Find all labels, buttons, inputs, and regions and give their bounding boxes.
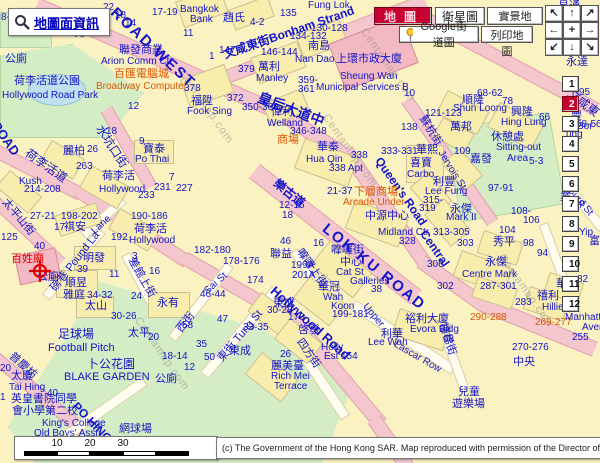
map-label: 38 <box>371 285 382 295</box>
map-label: 祺安 <box>64 222 86 233</box>
map-label: 106 <box>523 216 540 226</box>
map-label: 174 <box>247 276 264 286</box>
map-label: 喜寶 <box>410 158 432 169</box>
map-label: 18 <box>282 211 293 221</box>
map-label: 嚤囉街 <box>331 245 364 256</box>
map-label: 公廁 <box>5 54 27 65</box>
map-label: 98 <box>523 239 534 249</box>
map-label: 35 <box>196 340 207 350</box>
map-label: 319 <box>419 204 436 214</box>
map-label: Arcade Under <box>343 198 405 208</box>
map-label: 135 <box>280 9 297 19</box>
pan-west[interactable]: ← <box>545 22 563 39</box>
map-label: Mark II <box>446 213 477 223</box>
map-label: 190-186 <box>131 212 168 222</box>
map-label: 明發 <box>83 253 105 264</box>
map-label: Football Pitch <box>48 343 115 354</box>
map-label: 富 <box>589 236 600 247</box>
pan-east[interactable]: → <box>581 22 599 39</box>
map-label: 287-301 <box>480 282 517 292</box>
map-label: 21-37 <box>327 187 353 197</box>
zoom-level-6[interactable]: 6 <box>562 176 579 192</box>
map-label: 333-331 <box>381 147 418 157</box>
map-label: 中源中心 <box>365 211 409 222</box>
map-label: 17-19 <box>152 8 178 18</box>
zoom-level-7[interactable]: 7 <box>562 196 579 212</box>
scale-bar: 102030 <box>14 436 218 460</box>
map-label: 聯益 <box>270 249 292 260</box>
map-label: 26 <box>87 145 98 155</box>
map-label: 27-21 <box>30 212 56 222</box>
map-label: 47 <box>217 315 228 325</box>
map-label: Carbo <box>407 170 434 180</box>
map-label: 雅庭 <box>63 290 85 301</box>
pan-southwest[interactable]: ↙ <box>545 39 563 56</box>
map-label: 東成 <box>229 346 251 357</box>
map-label: 302 <box>437 282 454 292</box>
map-label: 263 <box>76 162 93 172</box>
map-label: 40 <box>47 389 58 399</box>
zoom-level-3[interactable]: 3 <box>562 116 579 132</box>
map-label: 嘉發 <box>470 154 492 165</box>
map-label: 192 <box>111 233 128 243</box>
map-label: 1 <box>209 52 215 62</box>
map-label: 荷李活道公園 <box>14 76 80 87</box>
map-label: 147 <box>219 46 236 56</box>
map-label: 卜公花園 <box>87 358 135 370</box>
map-label: 94 <box>537 249 548 259</box>
zoom-level-5[interactable]: 5 <box>562 156 579 172</box>
map-label: 39 <box>77 265 88 275</box>
map-label: 303 <box>457 239 474 249</box>
map-info-button[interactable]: 地圖面資訊 <box>8 8 110 36</box>
map-label: Lee Wah <box>368 338 408 348</box>
map-label: 趙氏 <box>223 13 245 24</box>
map-label: Sitting-out <box>496 143 541 153</box>
map-label: 秀平 <box>493 237 515 248</box>
map-label: Hollywood Road Park <box>2 91 98 101</box>
map-canvas[interactable]: Centamap.comCentamap.comCentamap.comCent… <box>0 0 600 463</box>
map-label: Arion Comm Ctr <box>101 57 173 67</box>
map-label: Nan Dao <box>295 55 334 65</box>
map-label: 214-208 <box>24 185 61 195</box>
scale-segment <box>90 451 123 456</box>
map-label: 12 <box>128 102 139 112</box>
map-label: 網球場 <box>119 424 152 435</box>
map-label: 荷李活 <box>134 224 167 235</box>
map-label: Sheung Wan <box>340 72 397 82</box>
map-label: 338 Apt <box>329 164 363 174</box>
pan-center[interactable]: + <box>563 22 581 39</box>
map-label: Terrace <box>274 382 307 392</box>
map-label: 46 <box>280 237 291 247</box>
map-label: Hollywood <box>129 236 175 246</box>
map-label: Bank <box>190 15 213 25</box>
map-label: Tai Hing <box>9 383 45 393</box>
scale-tick: 10 <box>49 438 65 449</box>
pan-control: ↖↑↗←+→↙↓↘ <box>545 5 599 56</box>
map-label: 26 <box>280 350 291 360</box>
map-label: Municipal Services B <box>316 83 409 93</box>
map-info-button-label: 地圖面資訊 <box>34 13 99 32</box>
map-label: 永有 <box>157 298 179 309</box>
location-marker-icon <box>29 260 51 282</box>
map-label: 16 <box>149 267 160 277</box>
map-label: 5-3 <box>529 157 543 167</box>
map-label: 18-14 <box>162 352 188 362</box>
scale-segment <box>57 451 90 456</box>
map-label: 11 <box>183 29 193 39</box>
map-label: 16 <box>313 239 324 249</box>
map-label: 233 <box>138 191 155 201</box>
map-label: 中央 <box>513 357 535 368</box>
map-label: 313-305 <box>433 228 470 238</box>
zoom-level-10[interactable]: 10 <box>562 256 579 272</box>
map-label: 11 <box>109 270 119 280</box>
scale-segment <box>24 451 57 456</box>
map-label: 20 <box>148 333 159 343</box>
map-label: 255 <box>572 333 589 343</box>
map-label: 兒童 <box>458 387 480 398</box>
scale-tick: 20 <box>82 438 98 449</box>
map-label: 百匯電腦城 <box>114 69 169 80</box>
map-label: Centre Mark <box>462 270 517 280</box>
map-label: 聯發商業 <box>119 45 163 56</box>
map-label: 104 <box>499 226 516 236</box>
map-label: 97-91 <box>488 184 514 194</box>
zoom-level-2[interactable]: 2 <box>562 96 579 112</box>
map-label: 231 <box>154 183 171 193</box>
zoom-level-control: 123456789101112 <box>562 74 580 314</box>
map-label: 萬邦 <box>450 122 472 133</box>
map-label: 10 <box>404 89 415 99</box>
map-label: 290-288 <box>470 313 507 323</box>
map-label: Fook Sing <box>187 107 232 117</box>
map-label: 永達 <box>566 57 588 68</box>
map-label: 199-181 <box>332 310 369 320</box>
zoom-level-1[interactable]: 1 <box>562 76 579 92</box>
pan-south[interactable]: ↓ <box>563 39 581 56</box>
map-label: 偉利 <box>271 107 293 118</box>
map-label: Area <box>507 154 528 164</box>
google-street-map-button[interactable]: Google街道圖 <box>399 26 479 43</box>
map-label: 121-123 <box>425 109 462 119</box>
scale-segment <box>156 451 189 456</box>
zoom-level-8[interactable]: 8 <box>562 216 579 232</box>
map-label: 109 <box>454 147 471 157</box>
map-label: 上環市政大廈 <box>336 54 402 65</box>
zoom-level-4[interactable]: 4 <box>562 136 579 152</box>
pan-southeast[interactable]: ↘ <box>581 39 599 56</box>
map-label: 太山 <box>85 301 107 312</box>
map-label: 306 <box>427 260 444 270</box>
scale-tick: 30 <box>115 438 131 449</box>
map-label: 遊樂場 <box>452 399 485 410</box>
map-label: 18 <box>106 127 117 137</box>
pan-northeast[interactable]: ↗ <box>581 5 599 22</box>
map-label: 66 <box>539 113 550 123</box>
map-label: 足球場 <box>58 328 94 340</box>
map-label: BLAKE GARDEN <box>64 372 150 383</box>
map-label: 125 <box>1 233 18 243</box>
map-label: 南島 <box>308 41 330 52</box>
map-label: 太平 <box>128 328 150 339</box>
map-label: 4-2 <box>250 18 264 28</box>
map-label: 順昱 <box>65 278 87 289</box>
google-street-map-label: Google街道圖 <box>415 19 472 51</box>
map-label: 30-26 <box>111 312 137 322</box>
map-label: 12 <box>184 363 195 373</box>
map-label: 50 <box>204 353 215 363</box>
map-label: 商場 <box>277 135 299 146</box>
map-label: 24 <box>131 292 142 302</box>
map-label: 會小學第二校 <box>12 406 78 417</box>
scene-map-button[interactable]: 實景地圖 <box>487 7 543 25</box>
map-label: 太慶 <box>11 371 33 382</box>
map-label: 英皇書院同學 <box>11 394 77 405</box>
search-icon <box>14 14 30 30</box>
map-label: 379 <box>238 65 255 75</box>
print-map-button[interactable]: 列印地圖 <box>481 26 533 43</box>
map-label: 338 <box>351 151 368 161</box>
map-label: 378 <box>184 84 201 94</box>
scale-segment <box>123 451 156 456</box>
map-label: 禧利 <box>537 291 559 302</box>
map-label: 178-176 <box>223 257 260 267</box>
copyright-text: (c) The Government of the Hong Kong SAR.… <box>217 443 600 453</box>
pan-northwest[interactable]: ↖ <box>545 5 563 22</box>
map-label: 361 <box>298 85 315 95</box>
zoom-level-12[interactable]: 12 <box>562 296 579 312</box>
map-label: 138 <box>401 123 418 133</box>
map-label: 公廁 <box>155 374 177 385</box>
map-label: 華秦 <box>317 142 339 153</box>
map-label: 40 <box>34 242 45 252</box>
map-label: 麗柏 <box>63 146 85 157</box>
map-label: 14 <box>125 19 136 29</box>
map-label: 58 <box>182 321 193 331</box>
map-app: Centamap.comCentamap.comCentamap.comCent… <box>0 0 600 463</box>
map-label: 永傑 <box>485 257 507 268</box>
zoom-level-9[interactable]: 9 <box>562 236 579 252</box>
map-label: Broadway Computer <box>96 82 187 92</box>
map-pin-icon <box>406 28 413 41</box>
map-label: 182-180 <box>194 246 231 256</box>
map-label: 荷李活 <box>102 171 135 182</box>
pan-north[interactable]: ↑ <box>563 5 581 22</box>
map-label: 20 <box>0 364 11 374</box>
map-label: 萬利 <box>258 62 280 73</box>
map-label: 1 <box>0 393 6 403</box>
map-label: 201A <box>292 271 315 281</box>
map-label: Manley <box>256 74 288 84</box>
copyright-bar: (c) The Government of the Hong Kong SAR.… <box>216 437 600 459</box>
map-label: 328 <box>399 237 416 247</box>
map-label: Galleries <box>350 277 389 287</box>
map-label: 283 <box>515 298 532 308</box>
map-label: 華熙 <box>416 145 438 156</box>
zoom-level-11[interactable]: 11 <box>562 276 579 292</box>
map-label: Po Thai <box>135 155 169 165</box>
map-label: 146-144 <box>261 48 298 58</box>
map-label: 270-276 <box>512 343 549 353</box>
map-label: 227 <box>176 184 193 194</box>
